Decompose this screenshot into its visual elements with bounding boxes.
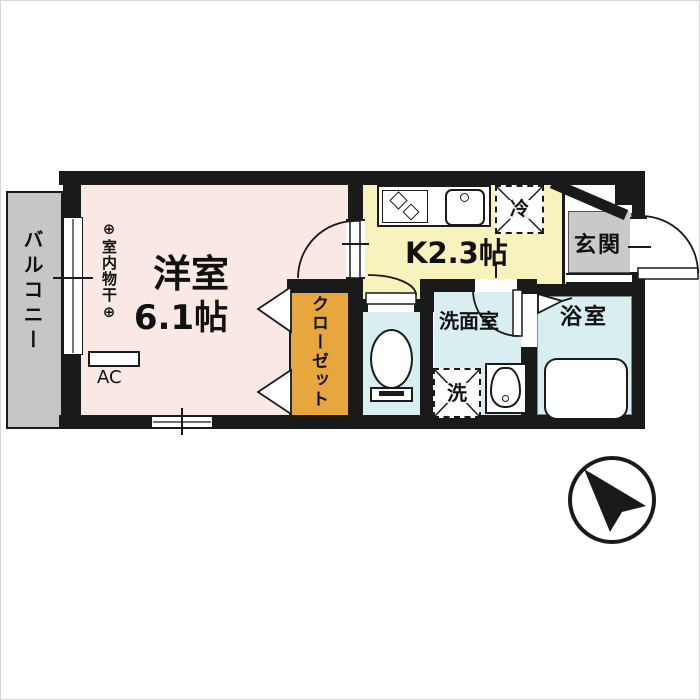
faucet-icon xyxy=(460,193,469,202)
refrigerator-label: 冷 xyxy=(495,185,544,234)
wall-toilet-washroom xyxy=(420,306,433,415)
kitchen-label: K2.3帖 xyxy=(405,239,508,268)
door-arc-entrance xyxy=(641,216,698,273)
doorway-bathroom xyxy=(521,292,537,349)
doorway-room-kitchen xyxy=(346,219,365,279)
entrance-step xyxy=(566,273,632,284)
ac-label: AC xyxy=(97,367,122,388)
indoor-drying-label: ⊕室内物干⊕ xyxy=(99,220,120,322)
entrance-label: 玄関 xyxy=(574,235,622,257)
doorway-entrance xyxy=(630,217,647,274)
floor-plan: バルコニー 洋室 6.1帖 ⊕室内物干⊕ AC クローゼット K2.3帖 冷 玄… xyxy=(0,0,700,700)
doorway-toilet xyxy=(366,299,416,312)
bathtub-icon xyxy=(544,358,628,420)
doorway-washroom xyxy=(473,279,519,292)
washing-machine-label-text: 洗 xyxy=(446,383,468,403)
bathroom-label: 浴室 xyxy=(560,307,608,329)
closet-label: クローゼット xyxy=(309,295,326,409)
bottom-window xyxy=(151,416,213,428)
wall-bathroom-top xyxy=(537,284,645,296)
washbasin-drain xyxy=(502,395,509,402)
washroom-label: 洗面室 xyxy=(439,311,499,331)
north-arrow-icon xyxy=(570,458,654,542)
balcony-label: バルコニー xyxy=(22,229,42,354)
wall-pillar xyxy=(615,185,632,205)
stove-icon xyxy=(382,190,428,223)
toilet-seat-line xyxy=(379,391,404,396)
washing-machine-label: 洗 xyxy=(433,368,481,418)
door-leaf-entrance xyxy=(638,268,698,279)
ac-unit xyxy=(88,351,140,367)
toilet-icon xyxy=(370,329,413,389)
wall-kitchen-entrance-line xyxy=(562,185,565,284)
wall-top xyxy=(59,171,645,185)
refrigerator-label-text: 冷 xyxy=(509,200,530,219)
